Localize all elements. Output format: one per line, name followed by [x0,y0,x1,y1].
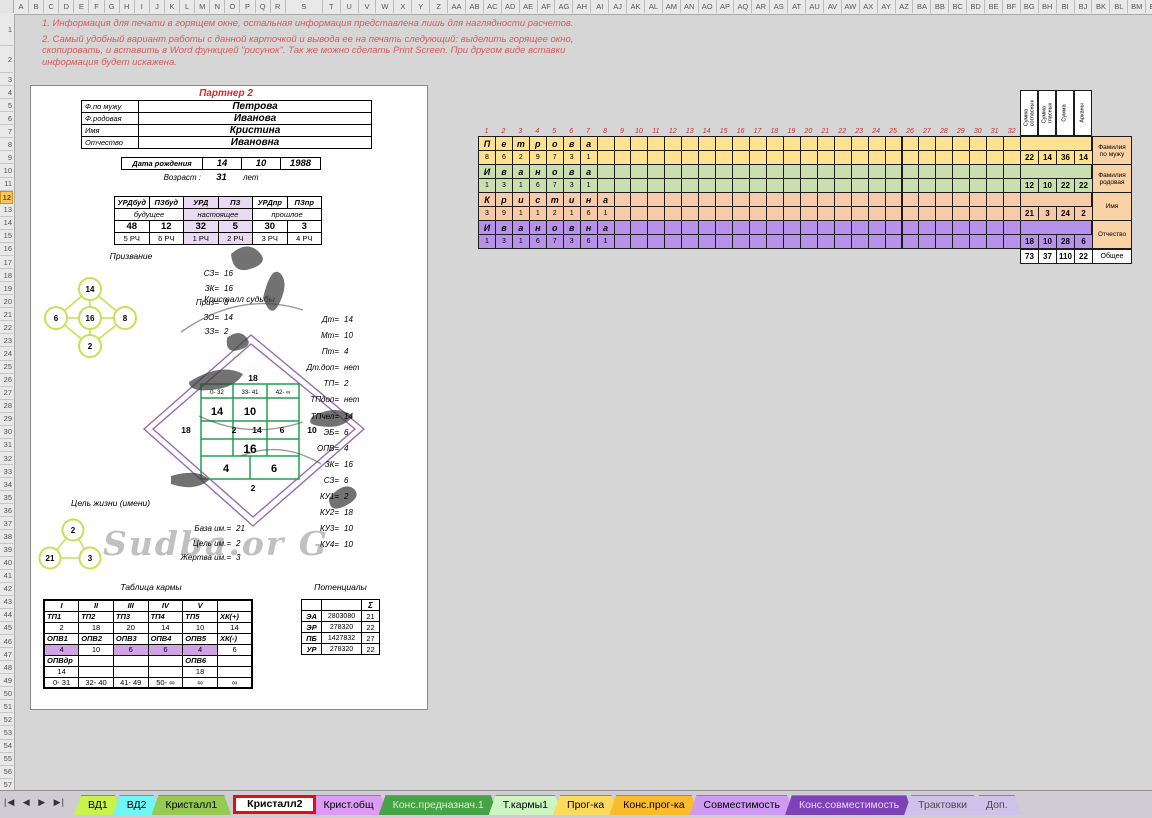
column-header-Y[interactable]: Y [412,0,430,13]
sheet-tab-Совместимость[interactable]: Совместимость [690,795,794,815]
column-header-AW[interactable]: AW [842,0,860,13]
row-header-51[interactable]: 51 [0,700,13,713]
letter-cell-3-29[interactable] [969,220,987,235]
row-header-35[interactable]: 35 [0,491,13,504]
letter-cell-0-11[interactable] [664,136,682,151]
column-header-AA[interactable]: AA [448,0,466,13]
first-sheet-button[interactable]: |◀ [4,797,15,808]
letter-cell-0-22[interactable] [851,136,869,151]
column-header-AK[interactable]: AK [627,0,645,13]
column-header-AI[interactable]: AI [591,0,609,13]
letter-cell-1-10[interactable] [647,164,665,179]
letter-cell-2-25[interactable] [902,192,920,207]
sheet-tab-Конс.прог-ка[interactable]: Конс.прог-ка [609,795,698,815]
letter-cell-1-22[interactable] [851,164,869,179]
column-header-AF[interactable]: AF [538,0,556,13]
digit-cell-2-31[interactable] [1003,206,1021,221]
digit-cell-2-27[interactable] [935,206,953,221]
column-header-BE[interactable]: BE [985,0,1003,13]
sheet-tab-Прог-ка[interactable]: Прог-ка [553,795,618,815]
digit-cell-2-20[interactable] [817,206,835,221]
digit-cell-0-11[interactable] [664,150,682,165]
column-header-AT[interactable]: AT [788,0,806,13]
row-header-12[interactable]: 12 [0,191,13,204]
sheet-tab-Конс.предназнач.1[interactable]: Конс.предназнач.1 [379,795,498,815]
letter-cell-3-24[interactable] [885,220,903,235]
column-header-BB[interactable]: BB [931,0,949,13]
band-sum-0-2[interactable]: 36 [1056,150,1075,165]
row-header-11[interactable]: 11 [0,178,13,191]
column-header-H[interactable]: H [120,0,135,13]
letter-cell-2-30[interactable] [986,192,1004,207]
letter-cell-2-20[interactable] [817,192,835,207]
sheet-tab-Конс.совместимость[interactable]: Конс.совместимость [785,795,913,815]
letter-cell-3-13[interactable] [698,220,716,235]
row-header-8[interactable]: 8 [0,138,13,151]
digit-cell-1-11[interactable] [664,178,682,193]
row-header-53[interactable]: 53 [0,727,13,740]
row-header-7[interactable]: 7 [0,125,13,138]
column-header-F[interactable]: F [90,0,105,13]
digit-cell-2-17[interactable] [766,206,784,221]
letter-cell-3-5[interactable]: в [563,220,581,235]
letter-cell-3-4[interactable]: о [546,220,564,235]
row-header-47[interactable]: 47 [0,648,13,661]
row-header-56[interactable]: 56 [0,766,13,779]
letter-cell-0-27[interactable] [935,136,953,151]
letter-cell-0-23[interactable] [868,136,886,151]
band-sum-3-0[interactable]: 18 [1020,234,1039,249]
letter-cell-1-15[interactable] [732,164,750,179]
digit-cell-0-27[interactable] [935,150,953,165]
digit-cell-0-2[interactable]: 2 [512,150,530,165]
letter-cell-1-19[interactable] [800,164,818,179]
letter-cell-3-18[interactable] [783,220,801,235]
column-header-BF[interactable]: BF [1003,0,1021,13]
sheet-tab-Т.кармы1[interactable]: Т.кармы1 [489,795,562,815]
band-sum-2-0[interactable]: 21 [1020,206,1039,221]
digit-cell-0-23[interactable] [868,150,886,165]
column-header-AO[interactable]: AO [699,0,717,13]
column-header-N[interactable]: N [210,0,225,13]
row-header-32[interactable]: 32 [0,452,13,465]
letter-cell-1-24[interactable] [885,164,903,179]
digit-cell-0-28[interactable] [952,150,970,165]
row-header-44[interactable]: 44 [0,609,13,622]
column-header-AD[interactable]: AD [502,0,520,13]
letter-cell-3-20[interactable] [817,220,835,235]
column-header-BM[interactable]: BM [1128,0,1146,13]
letter-cell-2-7[interactable]: а [597,192,615,207]
row-header-22[interactable]: 22 [0,321,13,334]
letter-cell-1-11[interactable] [664,164,682,179]
digit-cell-1-30[interactable] [986,178,1004,193]
row-header-3[interactable]: 3 [0,73,13,86]
digit-cell-0-22[interactable] [851,150,869,165]
digit-cell-0-20[interactable] [817,150,835,165]
row-header-24[interactable]: 24 [0,347,13,360]
row-header-27[interactable]: 27 [0,387,13,400]
digit-cell-0-9[interactable] [630,150,648,165]
letter-cell-0-14[interactable] [715,136,733,151]
band-sum-1-1[interactable]: 10 [1038,178,1057,193]
letter-cell-2-6[interactable]: н [580,192,598,207]
digit-cell-2-1[interactable]: 9 [495,206,513,221]
letter-cell-1-26[interactable] [918,164,936,179]
letter-cell-0-1[interactable]: е [495,136,513,151]
sheet-tab-Доп.[interactable]: Доп. [972,795,1022,815]
letter-cell-2-16[interactable] [749,192,767,207]
letter-cell-0-5[interactable]: в [563,136,581,151]
letter-cell-0-15[interactable] [732,136,750,151]
letter-cell-0-28[interactable] [952,136,970,151]
letter-cell-1-29[interactable] [969,164,987,179]
digit-cell-1-12[interactable] [681,178,699,193]
grid-total-0[interactable]: 73 [1020,249,1039,264]
column-header-I[interactable]: I [135,0,150,13]
row-header-17[interactable]: 17 [0,256,13,269]
letter-cell-3-0[interactable]: И [478,220,496,235]
digit-cell-1-21[interactable] [834,178,852,193]
digit-cell-1-18[interactable] [783,178,801,193]
digit-cell-0-1[interactable]: 6 [495,150,513,165]
sheet-tab-Кристалл1[interactable]: Кристалл1 [151,795,231,815]
column-header-AP[interactable]: AP [717,0,735,13]
letter-cell-3-23[interactable] [868,220,886,235]
column-header-AC[interactable]: AC [484,0,502,13]
digit-cell-3-28[interactable] [952,234,970,249]
digit-cell-3-5[interactable]: 3 [563,234,581,249]
letter-cell-2-24[interactable] [885,192,903,207]
row-header-6[interactable]: 6 [0,112,13,125]
letter-cell-2-17[interactable] [766,192,784,207]
row-header-1[interactable]: 1 [0,14,13,46]
digit-cell-1-16[interactable] [749,178,767,193]
digit-cell-0-21[interactable] [834,150,852,165]
digit-cell-0-30[interactable] [986,150,1004,165]
digit-cell-1-29[interactable] [969,178,987,193]
letter-cell-1-20[interactable] [817,164,835,179]
letter-cell-3-28[interactable] [952,220,970,235]
digit-cell-3-17[interactable] [766,234,784,249]
letter-cell-2-1[interactable]: р [495,192,513,207]
letter-cell-2-18[interactable] [783,192,801,207]
column-header-R[interactable]: R [271,0,286,13]
column-header-X[interactable]: X [394,0,412,13]
letter-cell-1-30[interactable] [986,164,1004,179]
letter-cell-2-19[interactable] [800,192,818,207]
row-header-49[interactable]: 49 [0,674,13,687]
letter-cell-1-8[interactable] [614,164,632,179]
letter-cell-0-17[interactable] [766,136,784,151]
digit-cell-0-7[interactable] [597,150,615,165]
letter-cell-1-16[interactable] [749,164,767,179]
letter-cell-3-3[interactable]: н [529,220,547,235]
letter-cell-2-3[interactable]: с [529,192,547,207]
letter-cell-3-14[interactable] [715,220,733,235]
column-header-BK[interactable]: BK [1093,0,1111,13]
column-header-C[interactable]: C [44,0,59,13]
letter-cell-3-31[interactable] [1003,220,1021,235]
digit-cell-3-3[interactable]: 6 [529,234,547,249]
column-header-AJ[interactable]: AJ [609,0,627,13]
row-header-37[interactable]: 37 [0,517,13,530]
digit-cell-2-5[interactable]: 1 [563,206,581,221]
letter-cell-3-7[interactable]: а [597,220,615,235]
letter-cell-1-25[interactable] [902,164,920,179]
row-header-38[interactable]: 38 [0,530,13,543]
letter-cell-3-11[interactable] [664,220,682,235]
row-header-34[interactable]: 34 [0,478,13,491]
column-header-AS[interactable]: AS [770,0,788,13]
digit-cell-1-20[interactable] [817,178,835,193]
column-header-BC[interactable]: BC [949,0,967,13]
band-sum-3-3[interactable]: 6 [1074,234,1093,249]
column-header-B[interactable]: B [29,0,44,13]
column-header-BI[interactable]: BI [1057,0,1075,13]
letter-cell-1-3[interactable]: н [529,164,547,179]
letter-cell-1-12[interactable] [681,164,699,179]
digit-cell-1-13[interactable] [698,178,716,193]
digit-cell-0-10[interactable] [647,150,665,165]
letter-cell-3-19[interactable] [800,220,818,235]
digit-cell-3-22[interactable] [851,234,869,249]
row-header-29[interactable]: 29 [0,413,13,426]
digit-cell-3-16[interactable] [749,234,767,249]
row-header-48[interactable]: 48 [0,661,13,674]
letter-cell-3-26[interactable] [918,220,936,235]
letter-cell-2-9[interactable] [630,192,648,207]
letter-cell-1-5[interactable]: в [563,164,581,179]
letter-cell-3-1[interactable]: в [495,220,513,235]
digit-cell-3-7[interactable]: 1 [597,234,615,249]
digit-cell-1-3[interactable]: 6 [529,178,547,193]
column-header-E[interactable]: E [74,0,89,13]
letter-cell-2-13[interactable] [698,192,716,207]
letter-cell-2-21[interactable] [834,192,852,207]
sheet-tab-Крист.общ[interactable]: Крист.общ [309,795,387,815]
digit-cell-1-1[interactable]: 3 [495,178,513,193]
digit-cell-3-21[interactable] [834,234,852,249]
column-header-AR[interactable]: AR [752,0,770,13]
row-header-25[interactable]: 25 [0,361,13,374]
column-header-BD[interactable]: BD [967,0,985,13]
row-header-33[interactable]: 33 [0,465,13,478]
digit-cell-2-6[interactable]: 6 [580,206,598,221]
letter-cell-1-9[interactable] [630,164,648,179]
digit-cell-0-15[interactable] [732,150,750,165]
digit-cell-1-25[interactable] [902,178,920,193]
digit-cell-1-23[interactable] [868,178,886,193]
digit-cell-0-29[interactable] [969,150,987,165]
digit-cell-1-7[interactable] [597,178,615,193]
band-sum-2-1[interactable]: 3 [1038,206,1057,221]
row-header-26[interactable]: 26 [0,374,13,387]
row-header-31[interactable]: 31 [0,439,13,452]
letter-cell-3-15[interactable] [732,220,750,235]
row-header-36[interactable]: 36 [0,504,13,517]
digit-cell-1-28[interactable] [952,178,970,193]
column-header-AQ[interactable]: AQ [735,0,753,13]
column-header-AL[interactable]: AL [645,0,663,13]
letter-cell-3-16[interactable] [749,220,767,235]
sheet-tab-Трактовки[interactable]: Трактовки [904,795,981,815]
column-header-AE[interactable]: AE [520,0,538,13]
letter-cell-2-0[interactable]: К [478,192,496,207]
letter-cell-0-16[interactable] [749,136,767,151]
letter-cell-2-28[interactable] [952,192,970,207]
letter-cell-0-21[interactable] [834,136,852,151]
column-header-AU[interactable]: AU [806,0,824,13]
row-header-43[interactable]: 43 [0,596,13,609]
column-header-BL[interactable]: BL [1110,0,1128,13]
letter-cell-3-25[interactable] [902,220,920,235]
band-sum-3-2[interactable]: 28 [1056,234,1075,249]
column-header-AB[interactable]: AB [466,0,484,13]
letter-cell-1-18[interactable] [783,164,801,179]
digit-cell-2-29[interactable] [969,206,987,221]
column-header-K[interactable]: K [165,0,180,13]
digit-cell-3-20[interactable] [817,234,835,249]
sheet-tab-Кристалл2[interactable]: Кристалл2 [233,795,316,814]
digit-cell-3-9[interactable] [630,234,648,249]
digit-cell-1-31[interactable] [1003,178,1021,193]
column-header-T[interactable]: T [323,0,341,13]
digit-cell-3-31[interactable] [1003,234,1021,249]
column-header-AY[interactable]: AY [878,0,896,13]
letter-cell-1-31[interactable] [1003,164,1021,179]
digit-cell-2-4[interactable]: 2 [546,206,564,221]
digit-cell-3-14[interactable] [715,234,733,249]
digit-cell-0-18[interactable] [783,150,801,165]
digit-cell-2-0[interactable]: 3 [478,206,496,221]
digit-cell-1-22[interactable] [851,178,869,193]
row-header-15[interactable]: 15 [0,230,13,243]
digit-cell-2-11[interactable] [664,206,682,221]
letter-cell-2-11[interactable] [664,192,682,207]
digit-cell-0-14[interactable] [715,150,733,165]
row-header-28[interactable]: 28 [0,400,13,413]
row-header-23[interactable]: 23 [0,334,13,347]
row-header-55[interactable]: 55 [0,753,13,766]
letter-cell-0-2[interactable]: т [512,136,530,151]
digit-cell-2-28[interactable] [952,206,970,221]
column-header-Q[interactable]: Q [256,0,271,13]
digit-cell-0-31[interactable] [1003,150,1021,165]
letter-cell-1-2[interactable]: а [512,164,530,179]
letter-cell-0-6[interactable]: а [580,136,598,151]
letter-cell-2-23[interactable] [868,192,886,207]
digit-cell-0-26[interactable] [918,150,936,165]
row-header-41[interactable]: 41 [0,570,13,583]
letter-cell-0-25[interactable] [902,136,920,151]
letter-cell-0-4[interactable]: о [546,136,564,151]
letter-cell-0-26[interactable] [918,136,936,151]
digit-cell-2-21[interactable] [834,206,852,221]
letter-cell-0-8[interactable] [614,136,632,151]
digit-cell-2-23[interactable] [868,206,886,221]
digit-cell-2-22[interactable] [851,206,869,221]
digit-cell-2-2[interactable]: 1 [512,206,530,221]
select-all-corner[interactable] [0,0,14,13]
digit-cell-0-4[interactable]: 7 [546,150,564,165]
digit-cell-1-5[interactable]: 3 [563,178,581,193]
letter-cell-0-18[interactable] [783,136,801,151]
digit-cell-3-11[interactable] [664,234,682,249]
column-header-J[interactable]: J [150,0,165,13]
band-sum-1-0[interactable]: 12 [1020,178,1039,193]
letter-cell-0-7[interactable] [597,136,615,151]
digit-cell-3-6[interactable]: 6 [580,234,598,249]
digit-cell-2-8[interactable] [614,206,632,221]
letter-cell-2-2[interactable]: и [512,192,530,207]
letter-cell-0-9[interactable] [630,136,648,151]
digit-cell-1-24[interactable] [885,178,903,193]
row-header-4[interactable]: 4 [0,86,13,99]
digit-cell-2-18[interactable] [783,206,801,221]
band-sum-0-1[interactable]: 14 [1038,150,1057,165]
grid-total-3[interactable]: 22 [1074,249,1093,264]
column-header-L[interactable]: L [180,0,195,13]
row-header-20[interactable]: 20 [0,295,13,308]
letter-cell-3-22[interactable] [851,220,869,235]
letter-cell-3-9[interactable] [630,220,648,235]
letter-cell-2-15[interactable] [732,192,750,207]
column-header-V[interactable]: V [359,0,377,13]
digit-cell-0-24[interactable] [885,150,903,165]
column-header-G[interactable]: G [105,0,120,13]
row-header-54[interactable]: 54 [0,740,13,753]
digit-cell-2-12[interactable] [681,206,699,221]
band-sum-0-3[interactable]: 14 [1074,150,1093,165]
band-sum-2-3[interactable]: 2 [1074,206,1093,221]
column-header-D[interactable]: D [59,0,74,13]
letter-cell-2-22[interactable] [851,192,869,207]
column-header-AM[interactable]: AM [663,0,681,13]
column-header-AX[interactable]: AX [860,0,878,13]
grid-total-2[interactable]: 110 [1056,249,1075,264]
row-header-40[interactable]: 40 [0,557,13,570]
digit-cell-0-13[interactable] [698,150,716,165]
last-sheet-button[interactable]: ▶| [54,797,65,808]
row-header-9[interactable]: 9 [0,151,13,164]
digit-cell-1-2[interactable]: 1 [512,178,530,193]
digit-cell-2-10[interactable] [647,206,665,221]
digit-cell-1-4[interactable]: 7 [546,178,564,193]
letter-cell-2-26[interactable] [918,192,936,207]
digit-cell-3-2[interactable]: 1 [512,234,530,249]
digit-cell-1-19[interactable] [800,178,818,193]
row-header-2[interactable]: 2 [0,46,13,73]
digit-cell-2-13[interactable] [698,206,716,221]
digit-cell-1-27[interactable] [935,178,953,193]
column-header-AN[interactable]: AN [681,0,699,13]
letter-cell-0-24[interactable] [885,136,903,151]
next-sheet-button[interactable]: ▶ [38,797,46,808]
letter-cell-2-5[interactable]: и [563,192,581,207]
column-header-Z[interactable]: Z [430,0,448,13]
row-header-13[interactable]: 13 [0,204,13,217]
digit-cell-0-0[interactable]: 8 [478,150,496,165]
row-header-18[interactable]: 18 [0,269,13,282]
digit-cell-2-16[interactable] [749,206,767,221]
letter-cell-0-29[interactable] [969,136,987,151]
letter-cell-0-3[interactable]: р [529,136,547,151]
column-header-A[interactable]: A [14,0,29,13]
row-header-52[interactable]: 52 [0,713,13,726]
letter-cell-2-14[interactable] [715,192,733,207]
digit-cell-1-15[interactable] [732,178,750,193]
